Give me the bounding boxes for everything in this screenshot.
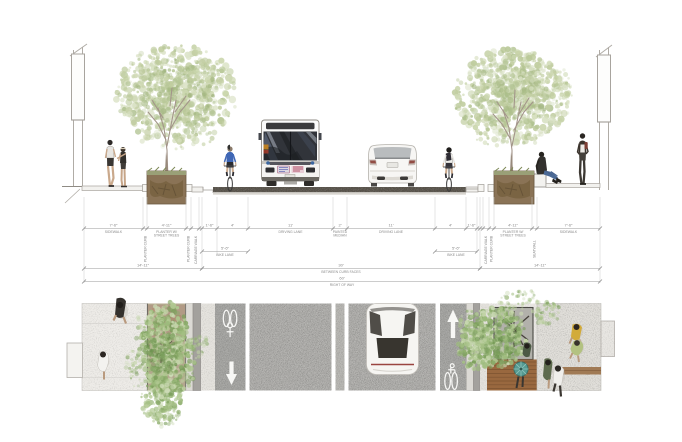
svg-text:4′: 4′ xyxy=(449,222,452,227)
svg-text:RIGHT OF WAY: RIGHT OF WAY xyxy=(330,283,355,287)
svg-text:STREET TREES: STREET TREES xyxy=(154,234,180,238)
svg-text:5′-6″: 5′-6″ xyxy=(221,245,230,250)
svg-text:CARRIAGE WALK: CARRIAGE WALK xyxy=(484,235,488,264)
svg-text:SIDEWALK: SIDEWALK xyxy=(560,230,578,234)
svg-text:7′-6″: 7′-6″ xyxy=(110,222,119,227)
svg-text:SEATWALL: SEATWALL xyxy=(533,240,537,258)
svg-text:14′-11″: 14′-11″ xyxy=(534,262,547,267)
svg-text:30′: 30′ xyxy=(338,262,343,267)
svg-text:7′-6″: 7′-6″ xyxy=(565,222,574,227)
svg-text:DRIVING LANE: DRIVING LANE xyxy=(279,230,304,234)
svg-text:4′-11″: 4′-11″ xyxy=(508,222,518,227)
svg-text:PLANTER CURB: PLANTER CURB xyxy=(490,235,494,262)
svg-text:BETWEEN CURB FACES: BETWEEN CURB FACES xyxy=(321,270,361,274)
svg-text:PLANTER CURB: PLANTER CURB xyxy=(187,235,191,262)
svg-text:DRIVING LANE: DRIVING LANE xyxy=(379,230,404,234)
svg-text:MEDIAN: MEDIAN xyxy=(333,234,347,238)
svg-text:11′: 11′ xyxy=(389,222,394,227)
svg-text:PLANTER CURB: PLANTER CURB xyxy=(144,235,148,262)
svg-text:BIKE LANE: BIKE LANE xyxy=(447,253,465,257)
svg-text:14′-11″: 14′-11″ xyxy=(137,262,150,267)
svg-text:1′-6″: 1′-6″ xyxy=(206,222,215,227)
svg-text:4′: 4′ xyxy=(231,222,234,227)
svg-text:1′-6″: 1′-6″ xyxy=(468,222,477,227)
svg-text:BIKE LANE: BIKE LANE xyxy=(216,253,234,257)
svg-text:11′: 11′ xyxy=(288,222,293,227)
svg-text:60′: 60′ xyxy=(339,275,344,280)
svg-text:STREET TREES: STREET TREES xyxy=(500,234,526,238)
svg-text:2′: 2′ xyxy=(339,222,342,227)
svg-text:SIDEWALK: SIDEWALK xyxy=(105,230,123,234)
svg-text:5′-6″: 5′-6″ xyxy=(452,245,461,250)
svg-text:4′-11″: 4′-11″ xyxy=(162,222,172,227)
svg-text:CARRIAGE WALK: CARRIAGE WALK xyxy=(194,235,198,264)
